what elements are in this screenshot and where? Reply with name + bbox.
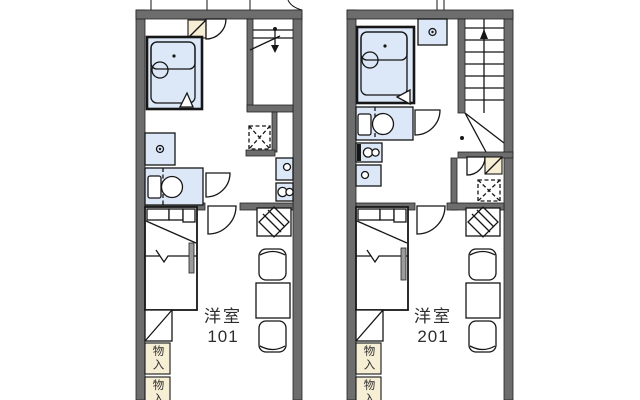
dining-table bbox=[256, 283, 290, 318]
storage-label: 物入 bbox=[356, 377, 381, 400]
closet-shelf-1 bbox=[358, 209, 380, 220]
washer-drain-dot bbox=[159, 148, 161, 150]
washing-machine bbox=[418, 19, 447, 45]
eave-lines bbox=[151, 0, 250, 10]
closet bbox=[145, 207, 197, 310]
room-label-101: 洋室 101 bbox=[194, 307, 252, 348]
dining-table bbox=[466, 283, 500, 318]
sliding-door-track bbox=[401, 248, 406, 280]
storage-label: 物入 bbox=[145, 377, 170, 400]
storage-label: 物入 bbox=[356, 343, 381, 374]
furniture bbox=[256, 207, 291, 352]
room-door-swing bbox=[208, 206, 236, 234]
toilet-door-swing bbox=[415, 110, 440, 135]
stair-arrow-head bbox=[480, 29, 488, 39]
furniture bbox=[466, 207, 500, 352]
storage-label: 物入 bbox=[145, 343, 170, 374]
wall-stairs-bottom bbox=[247, 105, 293, 112]
staircase bbox=[460, 19, 504, 152]
closet-shelf-3 bbox=[394, 209, 406, 222]
toilet-tank bbox=[148, 176, 161, 198]
toilet-tank bbox=[358, 114, 371, 135]
wall-entry-side bbox=[451, 158, 457, 210]
drain-dot bbox=[383, 44, 386, 47]
sliding-door-track bbox=[189, 243, 194, 273]
washing-machine bbox=[145, 133, 175, 165]
closet-shelf-3 bbox=[183, 209, 195, 222]
stair-treads bbox=[253, 30, 293, 38]
drain-dot bbox=[172, 54, 175, 57]
burner-right bbox=[286, 188, 293, 195]
toilet-bowl bbox=[162, 177, 183, 198]
room-name: 洋室 bbox=[404, 307, 462, 327]
washer-drain-dot bbox=[431, 31, 433, 33]
stair-arrow-head bbox=[271, 45, 279, 53]
room-number: 201 bbox=[404, 327, 462, 347]
wall-top bbox=[136, 10, 302, 19]
wall-stairs-left bbox=[458, 19, 465, 113]
stair-winders bbox=[465, 113, 504, 152]
room-name: 洋室 bbox=[194, 307, 252, 327]
toilet-room bbox=[145, 168, 230, 205]
toilet-door-swing bbox=[206, 173, 230, 197]
eave-curve bbox=[288, 0, 302, 10]
sink-drain bbox=[284, 164, 291, 171]
closet-shelf-2 bbox=[380, 209, 394, 220]
kitchen bbox=[249, 126, 293, 201]
room-number: 101 bbox=[194, 327, 252, 347]
tv-stand bbox=[466, 208, 500, 236]
bathroom-unit bbox=[147, 37, 202, 109]
stair-dot bbox=[460, 136, 464, 140]
floor-plan: 洋室 101 洋室 201 物入 物入 物入 物入 bbox=[0, 0, 640, 400]
sink-drain bbox=[362, 172, 369, 179]
wall-right bbox=[504, 10, 513, 400]
stove-edge bbox=[357, 144, 361, 161]
room-door-swing bbox=[417, 206, 445, 234]
wall-left bbox=[347, 10, 356, 400]
toilet-room bbox=[356, 107, 440, 140]
wall-stairs-left bbox=[247, 19, 253, 111]
floor-plan-canvas bbox=[0, 0, 640, 400]
wall-kitchen-divider bbox=[272, 112, 277, 152]
tv-stand bbox=[257, 208, 291, 236]
wall-top bbox=[347, 10, 513, 19]
bathroom bbox=[357, 27, 414, 104]
toilet-bowl bbox=[373, 114, 394, 135]
closet bbox=[356, 207, 408, 310]
wall-right bbox=[293, 10, 302, 400]
burner-left bbox=[363, 148, 372, 157]
room-label-201: 洋室 201 bbox=[404, 307, 462, 348]
bathroom-unit bbox=[357, 27, 414, 103]
bathroom bbox=[147, 37, 202, 109]
kitchen bbox=[356, 143, 382, 186]
counter-bar bbox=[246, 150, 275, 156]
entrance-door-swing bbox=[467, 157, 485, 175]
closet-shelf-1 bbox=[147, 209, 169, 220]
stairs-under bbox=[250, 27, 293, 53]
entrance-door-swing bbox=[206, 19, 226, 39]
wall-left bbox=[136, 10, 145, 400]
closet-shelf-2 bbox=[169, 209, 183, 220]
burner-right bbox=[372, 149, 379, 156]
